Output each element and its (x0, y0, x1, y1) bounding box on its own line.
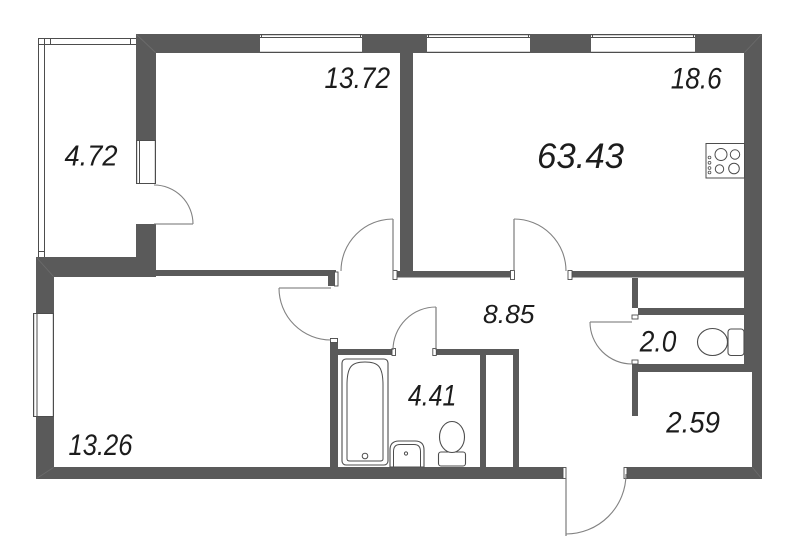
svg-text:13.72: 13.72 (325, 62, 391, 95)
svg-text:2.59: 2.59 (665, 407, 720, 440)
svg-text:2.0: 2.0 (639, 326, 677, 359)
svg-text:4.41: 4.41 (408, 379, 457, 412)
svg-text:4.72: 4.72 (65, 141, 118, 173)
svg-text:13.26: 13.26 (69, 429, 133, 462)
svg-text:8.85: 8.85 (483, 299, 535, 329)
svg-text:63.43: 63.43 (537, 136, 624, 176)
svg-text:18.6: 18.6 (671, 63, 722, 96)
